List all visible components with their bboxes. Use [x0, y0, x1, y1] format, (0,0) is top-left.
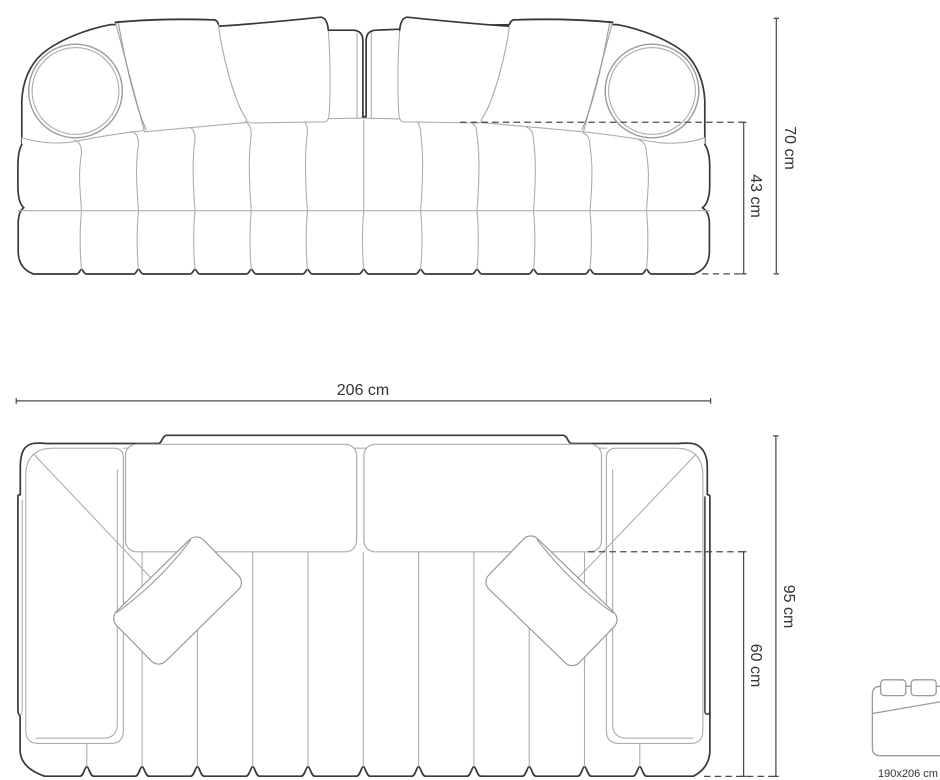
svg-text:206 cm: 206 cm — [337, 382, 389, 399]
svg-text:95 cm: 95 cm — [780, 585, 797, 629]
svg-text:70 cm: 70 cm — [781, 126, 798, 170]
svg-text:43 cm: 43 cm — [747, 174, 764, 218]
svg-text:60 cm: 60 cm — [747, 644, 764, 688]
svg-text:190x206 cm: 190x206 cm — [878, 768, 938, 780]
